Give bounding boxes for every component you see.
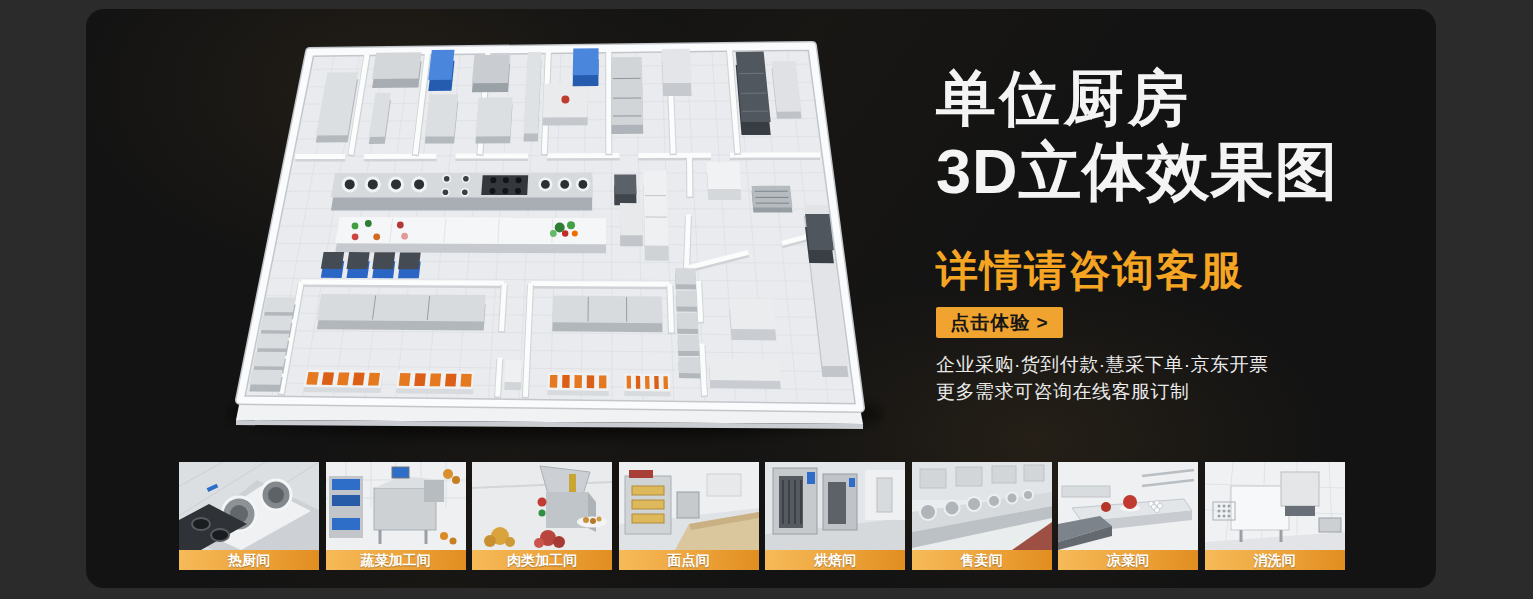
- thumbnail-label: 热厨间: [179, 550, 319, 570]
- thumbnail-image-meat-processing: [472, 462, 612, 550]
- thumbnail-washing-room[interactable]: 消洗间: [1205, 462, 1345, 570]
- thumbnail-image-selling-room: [912, 462, 1052, 550]
- thumbnail-image-pastry-room: [619, 462, 759, 550]
- thumbnail-image-cold-dish-room: [1058, 462, 1198, 550]
- thumbnail-image-washing-room: [1205, 462, 1345, 550]
- thumbnail-label: 面点间: [619, 550, 759, 570]
- thumbnail-pastry-room[interactable]: 面点间: [619, 462, 759, 570]
- thumbnail-label: 肉类加工间: [472, 550, 612, 570]
- info-line-1: 企业采购·货到付款·慧采下单·京东开票: [936, 353, 1268, 378]
- thumbnail-label: 烘焙间: [765, 550, 905, 570]
- floorplan-illustration: [225, 10, 885, 462]
- page-title-line-2: 3D立体效果图: [936, 138, 1339, 204]
- thumbnail-label: 凉菜间: [1058, 550, 1198, 570]
- thumbnail-cold-dish-room[interactable]: 凉菜间: [1058, 462, 1198, 570]
- subtitle-consult-service: 详情请咨询客服: [936, 249, 1244, 293]
- thumbnail-label: 消洗间: [1205, 550, 1345, 570]
- thumbnail-image-baking-room: [765, 462, 905, 550]
- thumbnail-image-vegetable-processing: [326, 462, 466, 550]
- thumbnail-vegetable-processing[interactable]: 蔬菜加工间: [326, 462, 466, 570]
- thumbnail-hot-kitchen[interactable]: 热厨间: [179, 462, 319, 570]
- info-line-2: 更多需求可咨询在线客服订制: [936, 380, 1190, 405]
- banner-panel: 单位厨房 3D立体效果图 详情请咨询客服 点击体验 > 企业采购·货到付款·慧采…: [86, 9, 1436, 588]
- thumbnail-label: 蔬菜加工间: [326, 550, 466, 570]
- thumbnail-selling-room[interactable]: 售卖间: [912, 462, 1052, 570]
- room-thumbnails: 热厨间 蔬菜加工间: [179, 462, 1345, 570]
- thumbnail-baking-room[interactable]: 烘焙间: [765, 462, 905, 570]
- thumbnail-image-hot-kitchen: [179, 462, 319, 550]
- cta-button[interactable]: 点击体验 >: [936, 307, 1063, 338]
- kitchen-floorplan-3d: [225, 10, 885, 462]
- thumbnail-label: 售卖间: [912, 550, 1052, 570]
- page-title-line-1: 单位厨房: [936, 67, 1192, 130]
- banner-root: 单位厨房 3D立体效果图 详情请咨询客服 点击体验 > 企业采购·货到付款·慧采…: [0, 0, 1533, 599]
- thumbnail-meat-processing[interactable]: 肉类加工间: [472, 462, 612, 570]
